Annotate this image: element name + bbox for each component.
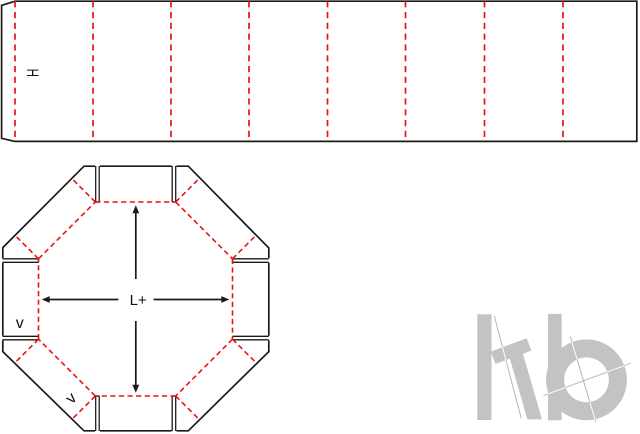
svg-text:H: H: [24, 69, 43, 77]
svg-text:L+: L+: [130, 292, 147, 309]
svg-text:v: v: [16, 315, 24, 332]
